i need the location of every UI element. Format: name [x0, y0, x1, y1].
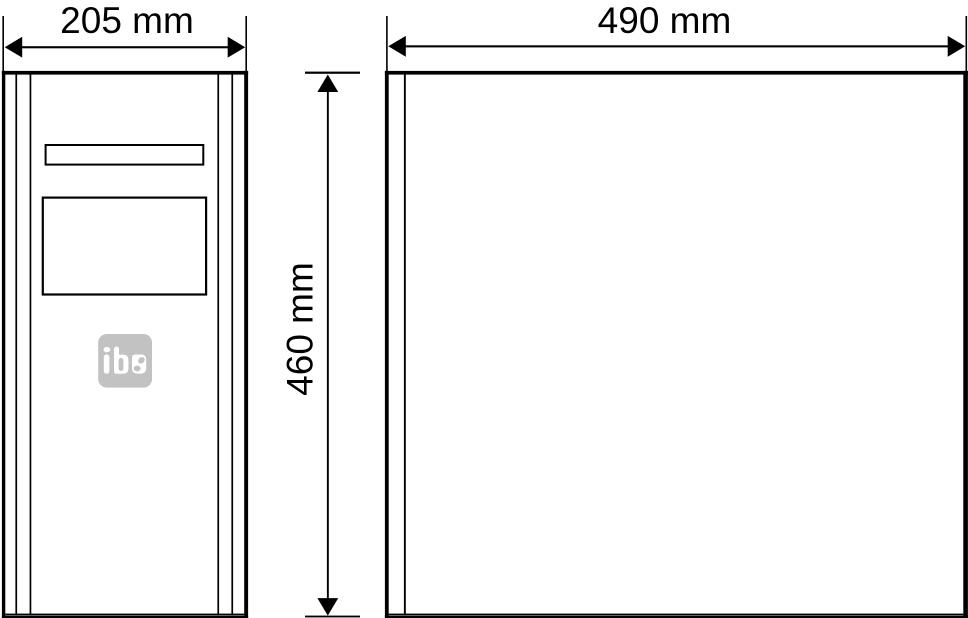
svg-text:490 mm: 490 mm: [598, 0, 732, 41]
svg-text:460 mm: 460 mm: [280, 262, 321, 396]
svg-text:205 mm: 205 mm: [60, 0, 194, 41]
